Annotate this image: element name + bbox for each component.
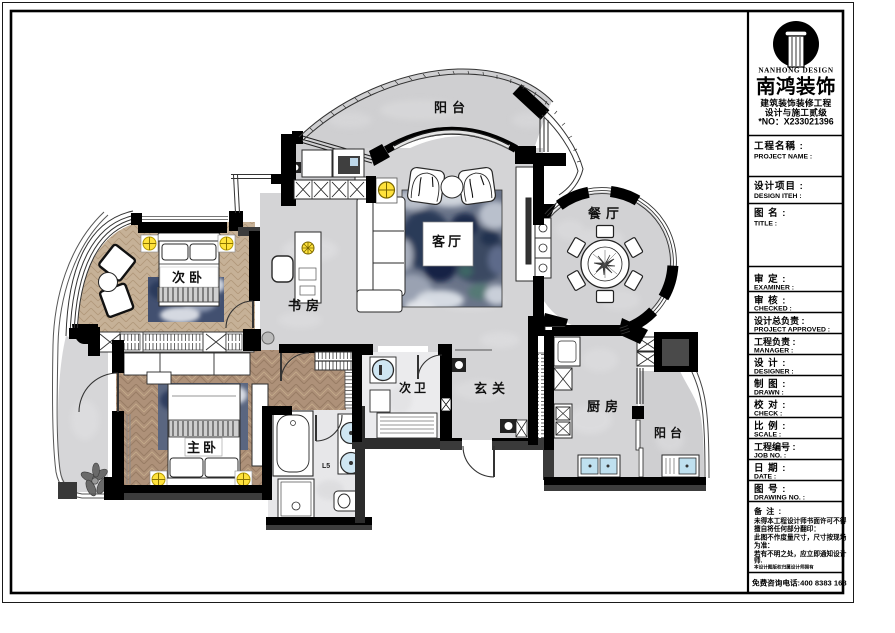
svg-text:阳台: 阳台 [434, 100, 470, 115]
svg-text:次卧: 次卧 [172, 270, 206, 285]
svg-text:工程编号 :: 工程编号 : [754, 441, 796, 452]
svg-text:若有不明之处，应立即通知设计: 若有不明之处，应立即通知设计 [754, 549, 847, 558]
svg-text:NANHONG DESIGN: NANHONG DESIGN [758, 67, 834, 75]
svg-text:L5: L5 [322, 463, 330, 470]
svg-text:图 名 :: 图 名 : [754, 207, 786, 219]
svg-text:设计总负责 :: 设计总负责 : [754, 315, 805, 326]
svg-text:TITLE :: TITLE : [754, 221, 777, 228]
svg-text:擅自将任何部分翻印：: 擅自将任何部分翻印： [754, 524, 820, 533]
svg-text:工程名稱 :: 工程名稱 : [754, 140, 804, 152]
svg-text:客厅: 客厅 [432, 234, 464, 249]
svg-text:工程负责 :: 工程负责 : [754, 336, 796, 347]
svg-text:DATE :: DATE : [754, 474, 776, 481]
svg-text:CHECK :: CHECK : [754, 411, 782, 418]
svg-text:未得本工程设计师书面许可不得: 未得本工程设计师书面许可不得 [754, 516, 847, 525]
svg-text:主卧: 主卧 [187, 440, 219, 455]
svg-text:备 注 :: 备 注 : [753, 506, 782, 516]
svg-text:本设计图版权归属设计师拥有: 本设计图版权归属设计师拥有 [753, 564, 814, 571]
svg-text:设 计 :: 设 计 : [754, 357, 786, 369]
svg-text:PROJECT NAME :: PROJECT NAME : [754, 154, 812, 161]
svg-text:审 定 :: 审 定 : [754, 273, 786, 285]
svg-text:PROJECT APPROVED :: PROJECT APPROVED : [754, 327, 830, 334]
svg-text:建筑装饰装修工程: 建筑装饰装修工程 [759, 97, 831, 108]
svg-text:厨房: 厨房 [587, 399, 623, 414]
svg-text:书房: 书房 [288, 298, 324, 313]
svg-text:校 对 :: 校 对 : [754, 399, 786, 411]
svg-text:JOB NO. :: JOB NO. : [754, 453, 786, 460]
svg-text:餐厅: 餐厅 [587, 206, 624, 221]
svg-text:免费咨询电话:400 8383 168: 免费咨询电话:400 8383 168 [752, 578, 847, 588]
svg-text:*NO：X233021396: *NO：X233021396 [758, 117, 833, 127]
svg-text:阳台: 阳台 [654, 425, 686, 440]
svg-text:比 例 :: 比 例 : [754, 420, 786, 432]
svg-text:EXAMINER :: EXAMINER : [754, 285, 794, 292]
svg-text:DRAWN :: DRAWN : [754, 390, 784, 397]
svg-text:为准：: 为准： [754, 541, 774, 550]
svg-text:DESIGNER :: DESIGNER : [754, 369, 794, 376]
svg-text:SCALE :: SCALE : [754, 432, 781, 439]
svg-text:MANAGER :: MANAGER : [754, 348, 793, 355]
svg-text:图 号 :: 图 号 : [754, 484, 786, 495]
svg-text:制 图 :: 制 图 : [754, 378, 786, 390]
svg-text:日 期 :: 日 期 : [754, 462, 786, 474]
svg-text:此图不作度量尺寸，尺寸按现场: 此图不作度量尺寸，尺寸按现场 [754, 533, 847, 542]
svg-text:次卫: 次卫 [399, 380, 429, 395]
svg-text:师.: 师. [754, 556, 763, 565]
svg-text:设计项目 :: 设计项目 : [754, 180, 804, 192]
svg-text:DESIGN ITEH :: DESIGN ITEH : [754, 193, 802, 200]
svg-text:南鸿装饰: 南鸿装饰 [756, 75, 836, 98]
svg-text:DRAWING NO. :: DRAWING NO. : [754, 495, 805, 502]
svg-text:CHECKED :: CHECKED : [754, 306, 792, 313]
svg-text:玄关: 玄关 [474, 381, 510, 396]
